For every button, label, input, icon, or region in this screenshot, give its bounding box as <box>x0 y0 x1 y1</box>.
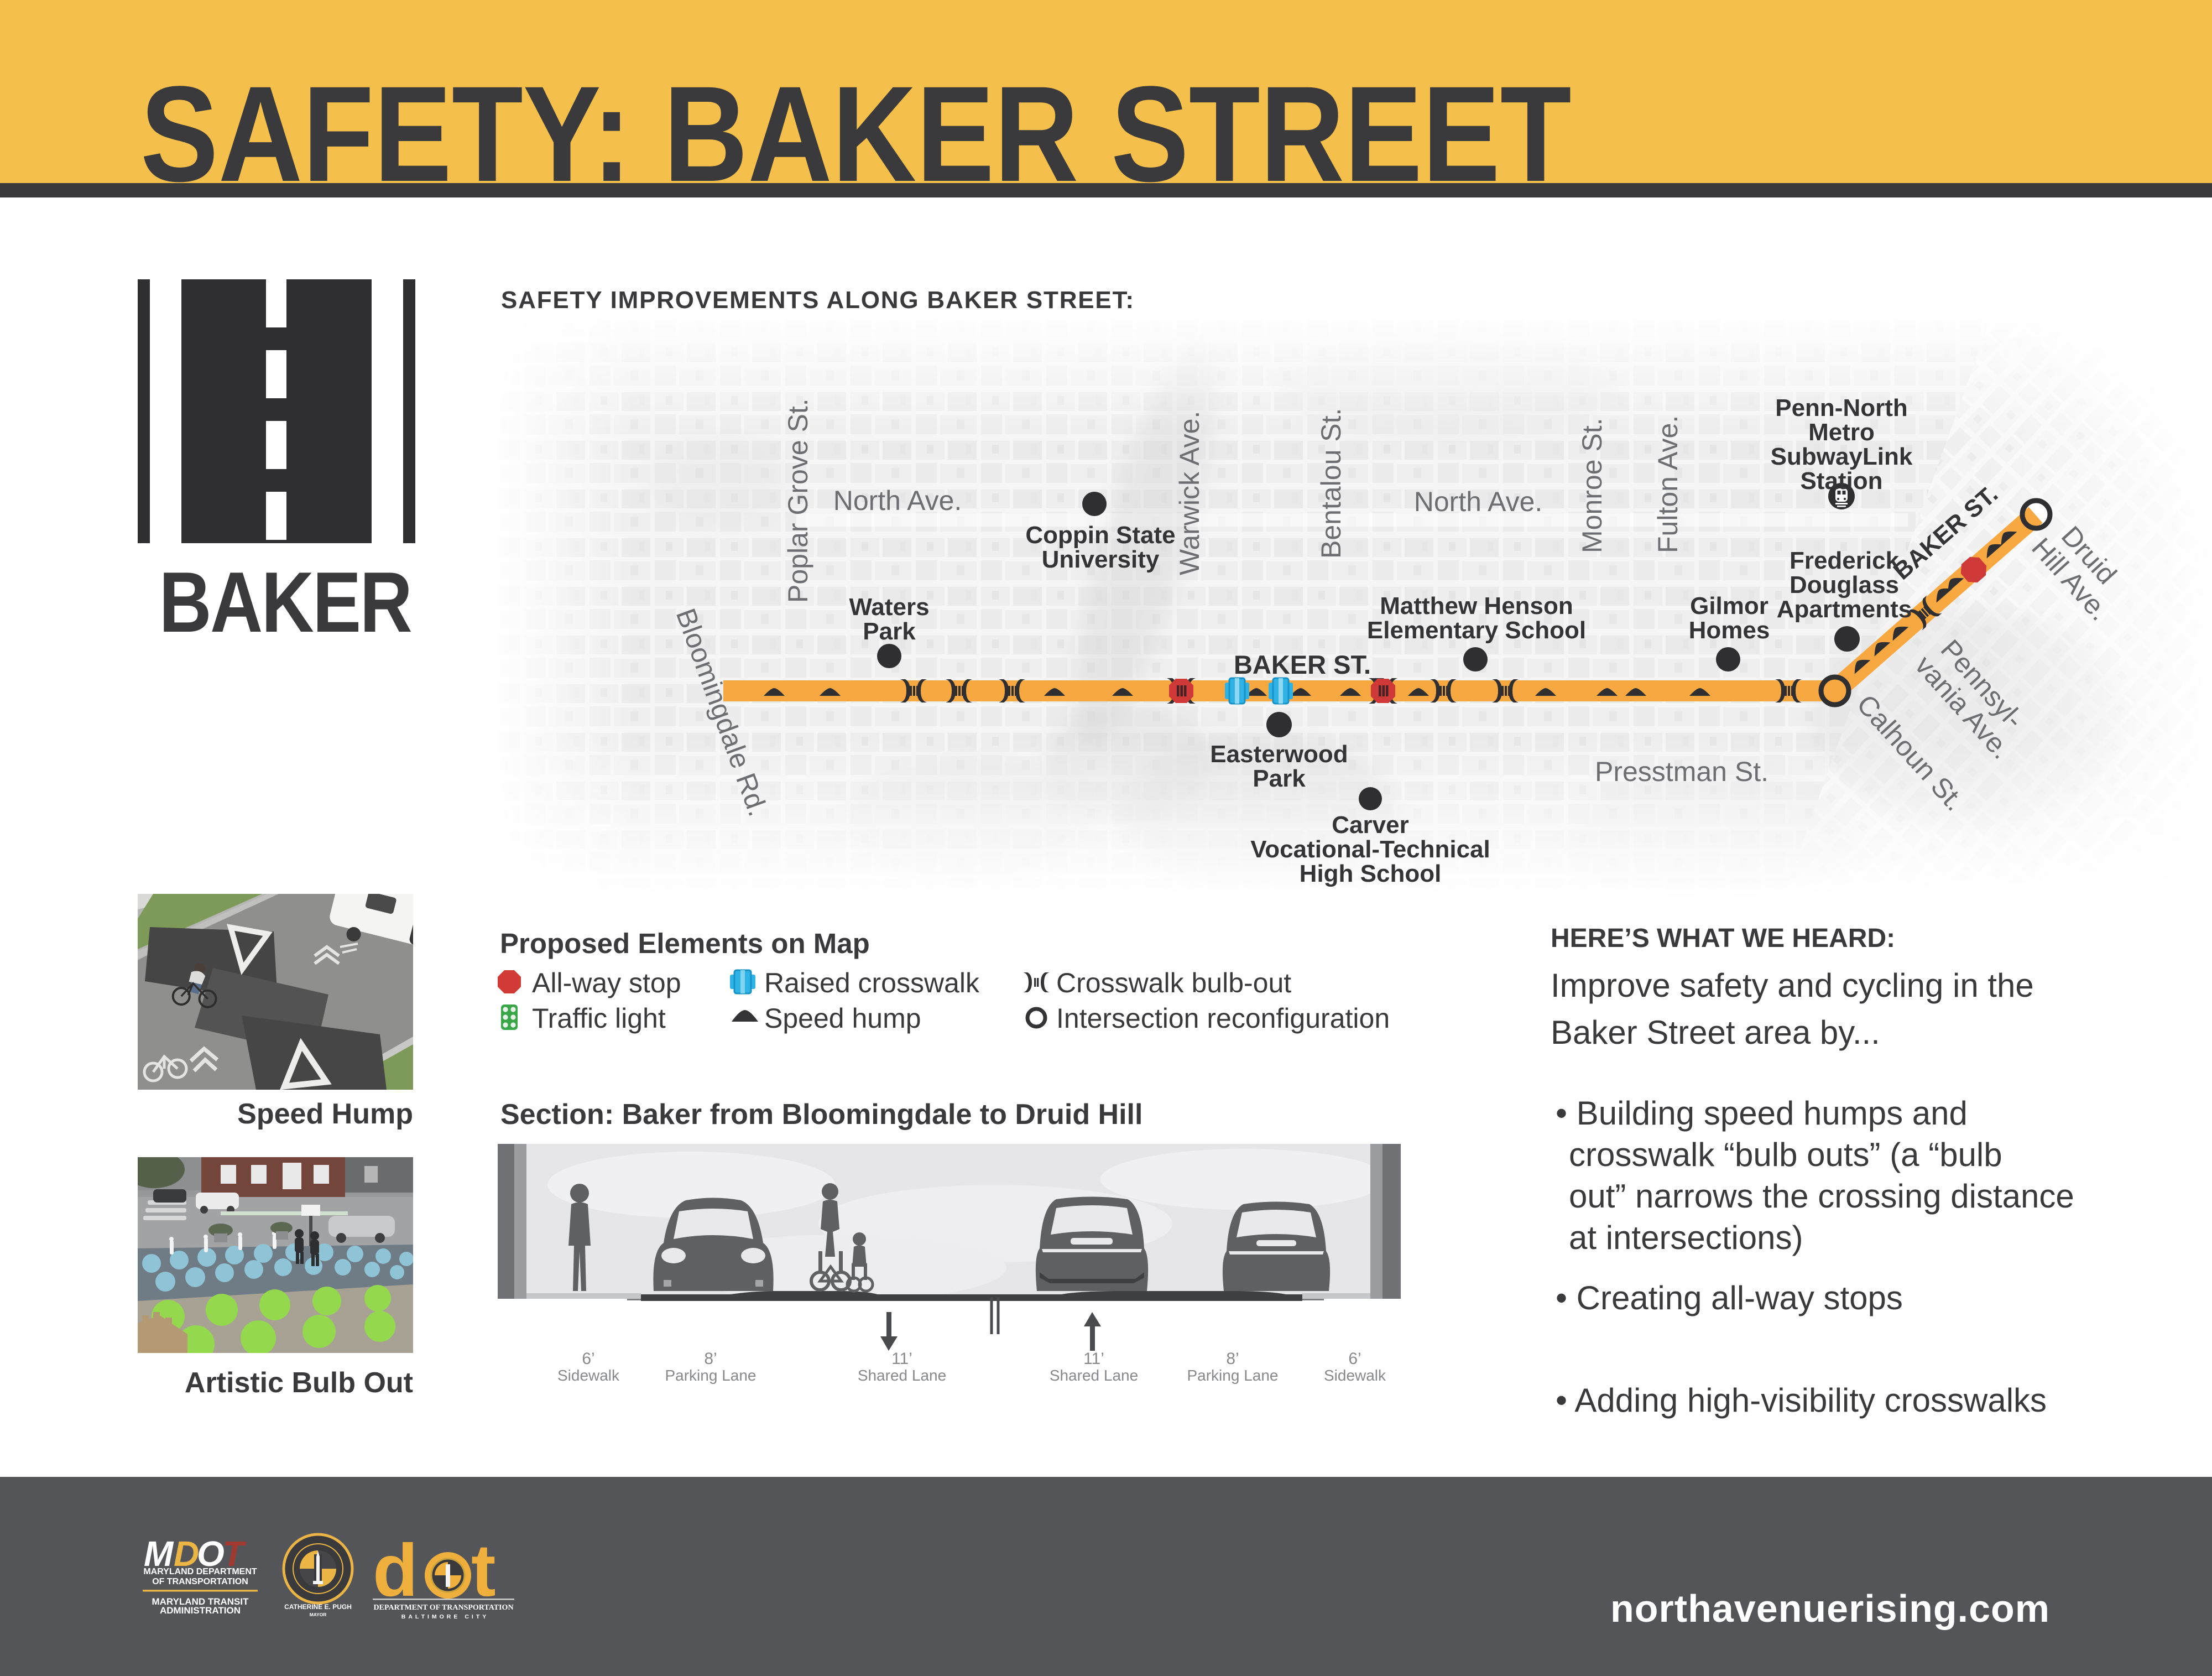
svg-text:Coppin State: Coppin State <box>1025 522 1175 549</box>
svg-text:Easterwood: Easterwood <box>1210 741 1348 768</box>
svg-text:Penn-North: Penn-North <box>1775 394 1908 421</box>
svg-text:6’: 6’ <box>1348 1350 1361 1368</box>
svg-text:Parking Lane: Parking Lane <box>1187 1367 1278 1384</box>
svg-text:Station: Station <box>1800 467 1882 495</box>
svg-text:Bentalou St.: Bentalou St. <box>1316 408 1347 559</box>
svg-text:Presstman St.: Presstman St. <box>1595 756 1768 787</box>
svg-text:DEPARTMENT OF TRANSPORTATION: DEPARTMENT OF TRANSPORTATION <box>373 1604 513 1612</box>
svg-text:Homes: Homes <box>1689 617 1770 644</box>
svg-text:High School: High School <box>1300 860 1442 887</box>
svg-text:Sidewalk: Sidewalk <box>557 1367 620 1384</box>
svg-text:Elementary School: Elementary School <box>1367 617 1586 644</box>
svg-text:8’: 8’ <box>704 1350 717 1368</box>
svg-text:Vocational-Technical: Vocational-Technical <box>1250 836 1490 863</box>
svg-text:8’: 8’ <box>1226 1350 1239 1368</box>
svg-text:Park: Park <box>863 618 916 645</box>
svg-text:University: University <box>1042 546 1160 573</box>
svg-text:Shared Lane: Shared Lane <box>858 1367 946 1384</box>
svg-text:OF TRANSPORTATION: OF TRANSPORTATION <box>152 1577 248 1586</box>
svg-text:Gilmor: Gilmor <box>1690 592 1768 620</box>
svg-text:Monroe St.: Monroe St. <box>1577 418 1608 553</box>
svg-text:BAKER ST.: BAKER ST. <box>1234 650 1371 679</box>
svg-text:MAYOR: MAYOR <box>310 1612 327 1617</box>
svg-text:CATHERINE E. PUGH: CATHERINE E. PUGH <box>284 1603 352 1611</box>
svg-text:Matthew Henson: Matthew Henson <box>1380 592 1573 620</box>
svg-text:Sidewalk: Sidewalk <box>1324 1367 1386 1384</box>
svg-text:Park: Park <box>1253 765 1306 792</box>
svg-text:ADMINISTRATION: ADMINISTRATION <box>160 1605 241 1616</box>
svg-text:BALTIMORE CITY: BALTIMORE CITY <box>401 1613 489 1620</box>
svg-text:Carver: Carver <box>1332 811 1408 839</box>
svg-text:11’: 11’ <box>891 1350 912 1368</box>
svg-text:MARYLAND DEPARTMENT: MARYLAND DEPARTMENT <box>143 1567 257 1576</box>
svg-text:Frederick: Frederick <box>1790 547 1900 574</box>
svg-text:North Ave.: North Ave. <box>1414 486 1543 517</box>
svg-text:Douglass: Douglass <box>1790 571 1899 598</box>
svg-text:North Ave.: North Ave. <box>833 485 962 516</box>
svg-text:Metro: Metro <box>1808 419 1875 446</box>
svg-text:Shared Lane: Shared Lane <box>1050 1367 1138 1384</box>
svg-text:Parking Lane: Parking Lane <box>665 1367 756 1384</box>
svg-text:SubwayLink: SubwayLink <box>1771 443 1913 470</box>
svg-text:Fulton Ave.: Fulton Ave. <box>1652 415 1683 553</box>
svg-text:Waters: Waters <box>849 594 929 621</box>
svg-text:6’: 6’ <box>582 1350 594 1368</box>
svg-text:11’: 11’ <box>1083 1350 1104 1368</box>
svg-text:Apartments: Apartments <box>1777 596 1912 623</box>
svg-text:Poplar Grove St.: Poplar Grove St. <box>782 398 813 603</box>
svg-text:Warwick Ave.: Warwick Ave. <box>1174 411 1205 575</box>
